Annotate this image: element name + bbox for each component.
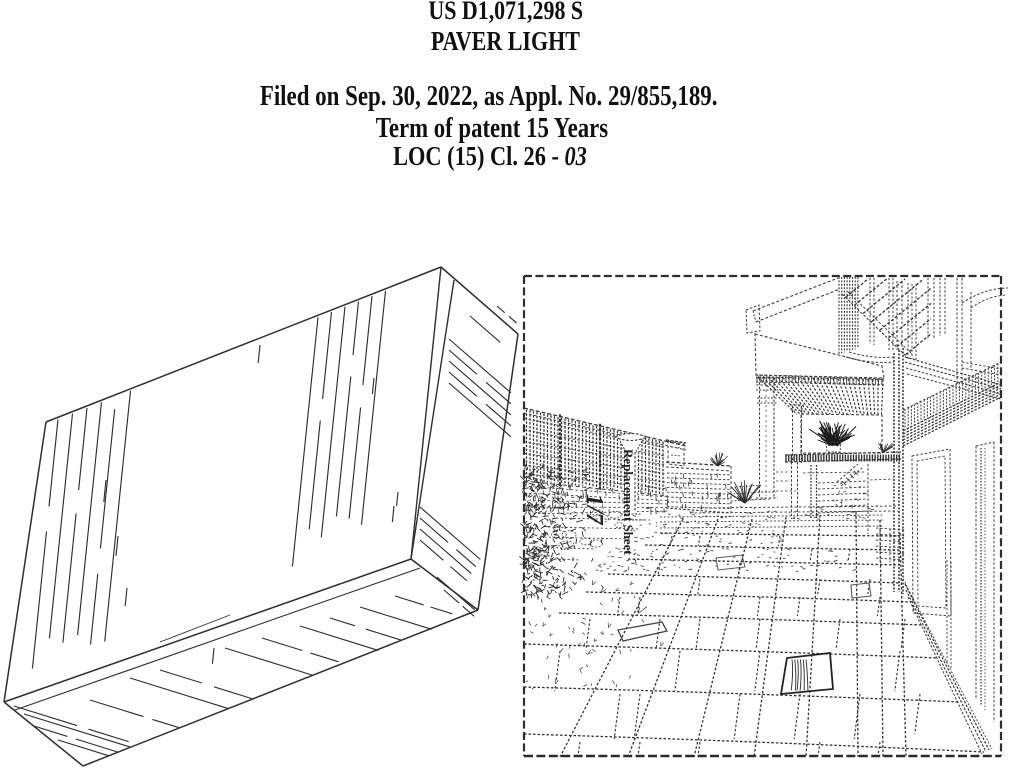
svg-text:Replacement Sheet: Replacement Sheet xyxy=(621,449,636,555)
svg-text:1/7: 1/7 xyxy=(581,494,607,526)
